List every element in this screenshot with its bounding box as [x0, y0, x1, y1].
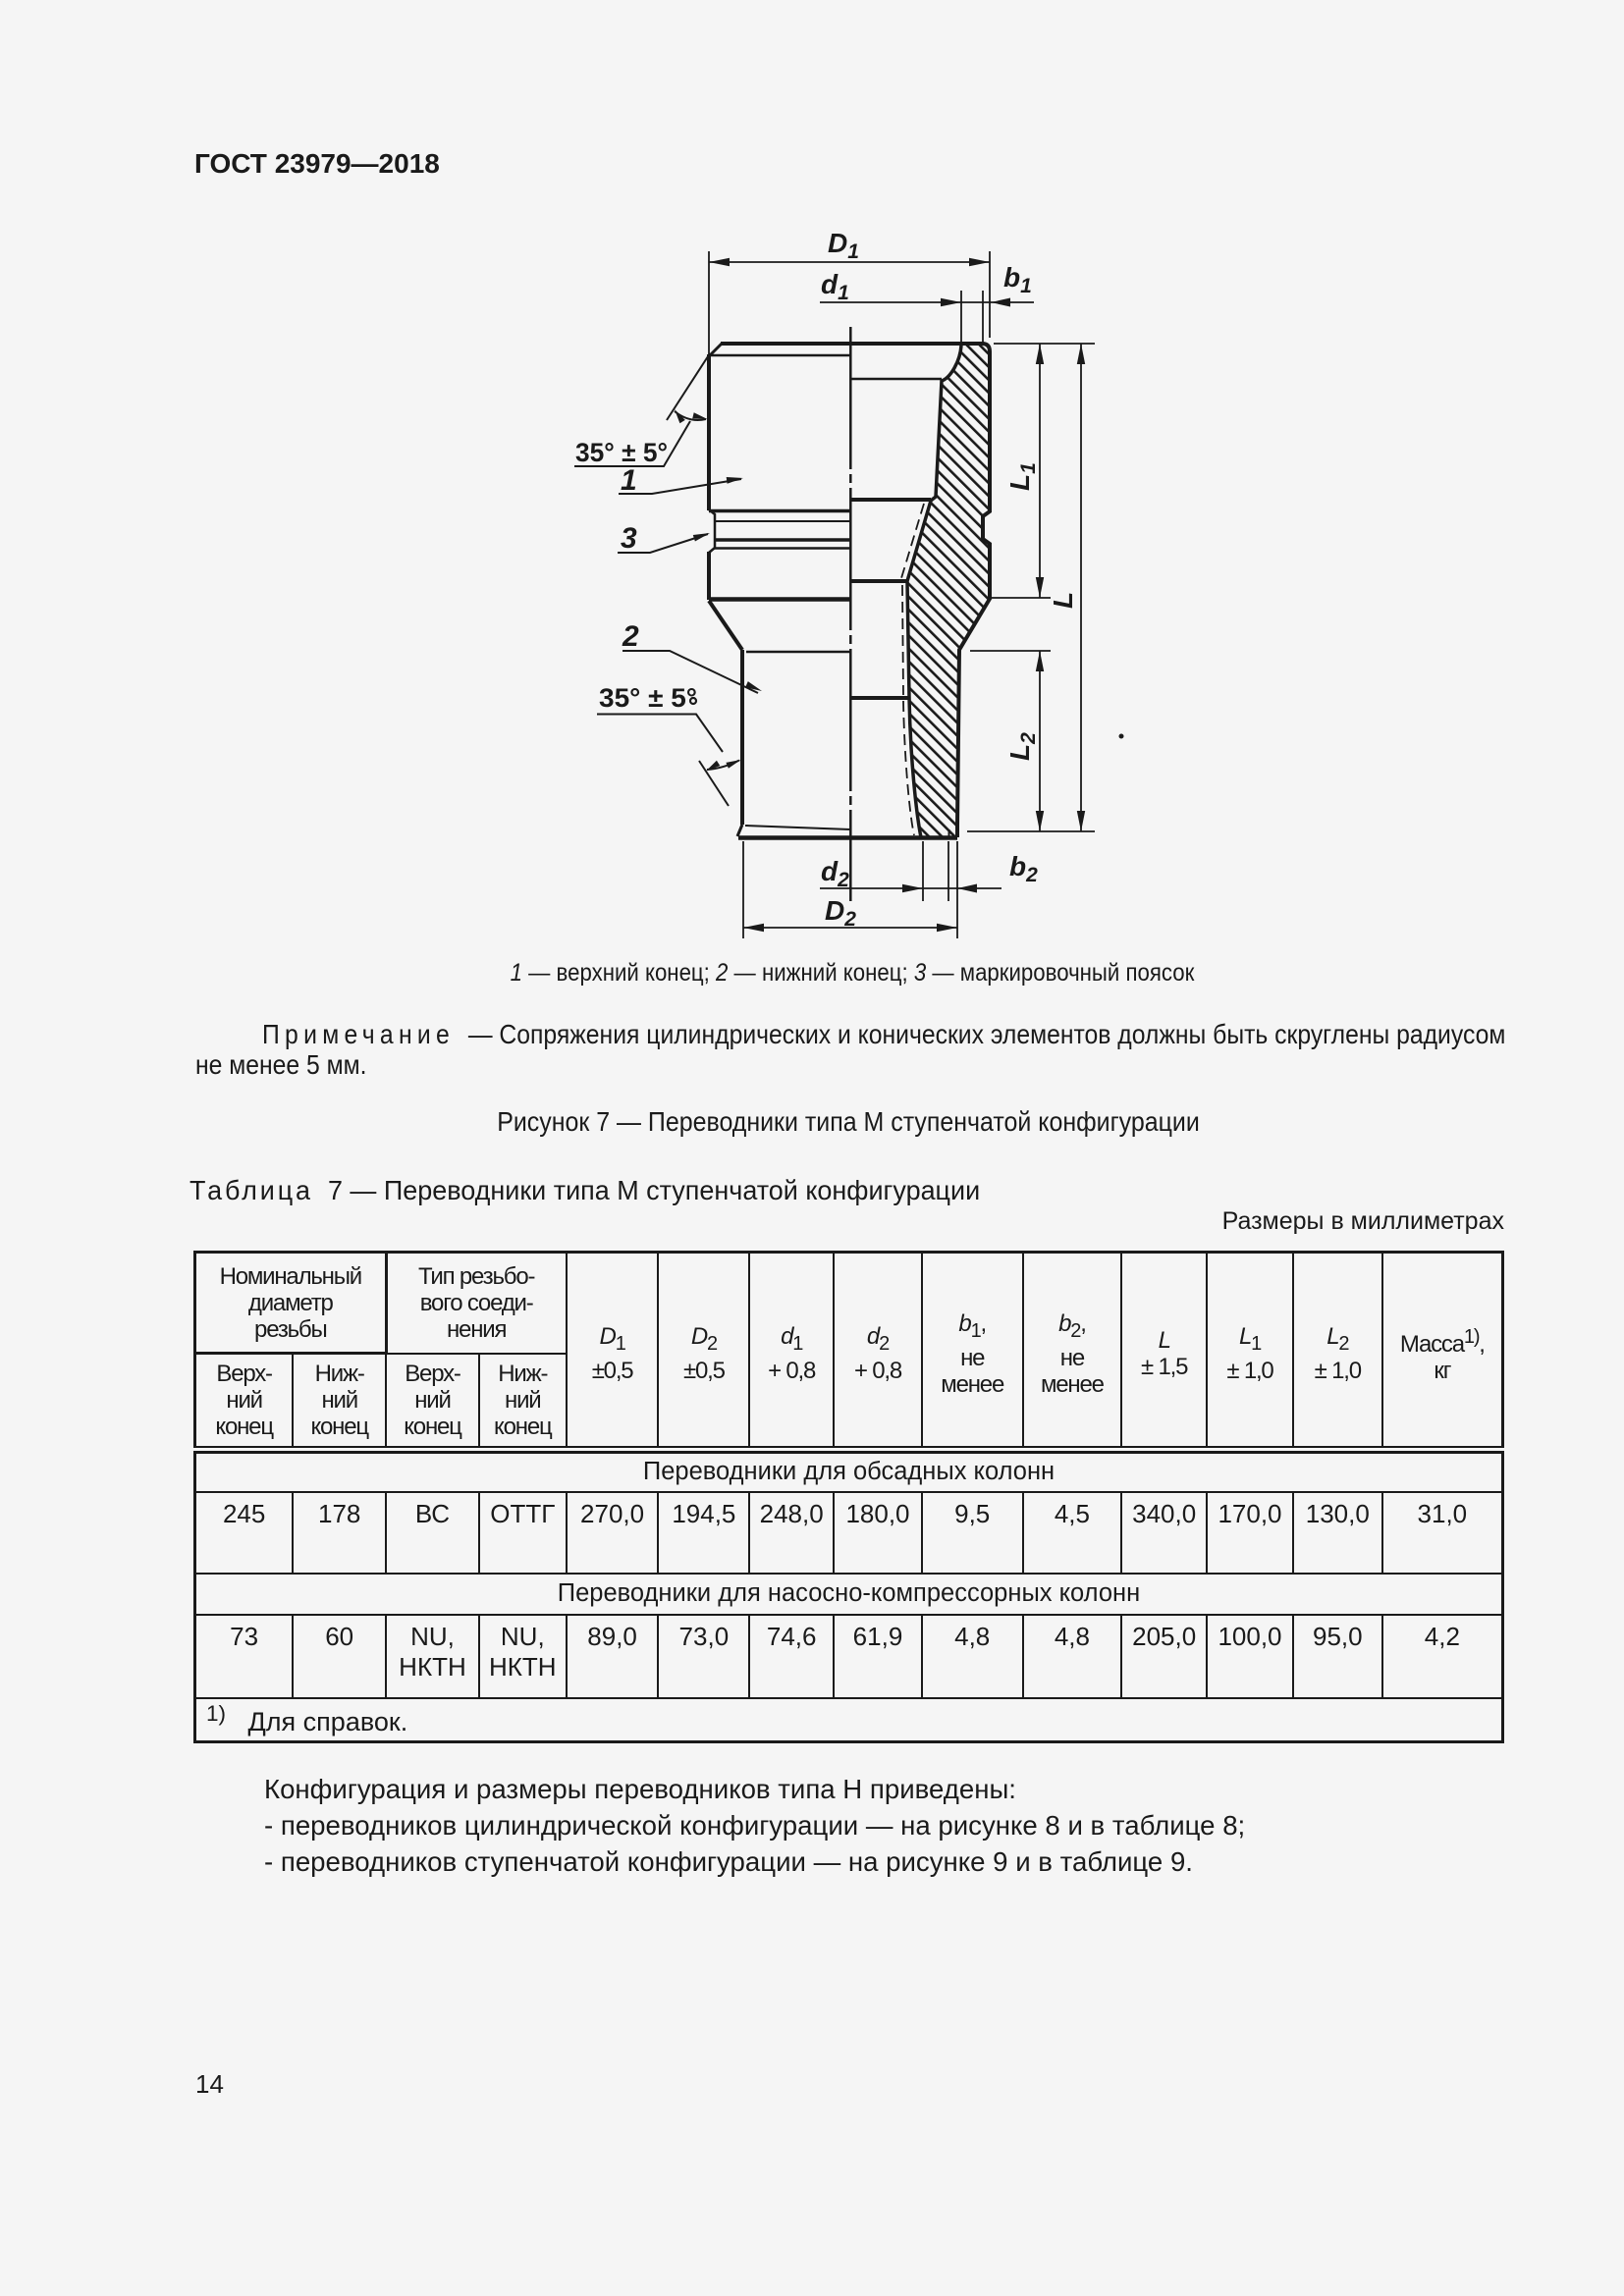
- svg-text:2: 2: [622, 620, 639, 653]
- svg-text:D1: D1: [828, 228, 859, 263]
- svg-text:L1: L1: [1004, 462, 1040, 491]
- svg-text:1: 1: [621, 464, 637, 497]
- svg-text:L2: L2: [1004, 732, 1040, 761]
- svg-text:3: 3: [621, 522, 637, 555]
- svg-text:b2: b2: [1009, 851, 1038, 886]
- svg-text:35° ± 5°: 35° ± 5°: [575, 438, 668, 467]
- svg-text:d2: d2: [821, 856, 849, 891]
- svg-text:L: L: [1048, 592, 1078, 609]
- svg-text:b1: b1: [1003, 262, 1032, 297]
- svg-text:35° ± 5°: 35° ± 5°: [599, 683, 697, 713]
- svg-text:d1: d1: [821, 269, 849, 304]
